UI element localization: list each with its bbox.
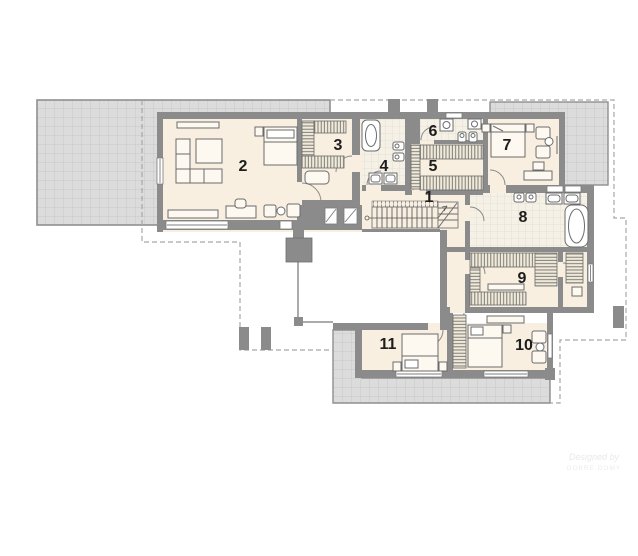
dresser: [524, 171, 552, 180]
room-label-9: 9: [518, 270, 527, 287]
pillar-1: [239, 327, 249, 350]
staircase: [365, 201, 458, 228]
room-label-8: 8: [519, 209, 528, 226]
room-label-1: 1: [425, 189, 434, 206]
dresser: [487, 316, 524, 323]
nightstand: [503, 325, 511, 333]
floor-plan-canvas: 1 2 3 4 5 6 7 8 9 10 11 Designed by DOBR…: [0, 0, 638, 556]
wardrobe: [411, 145, 420, 189]
wardrobe: [302, 156, 344, 168]
bench: [305, 171, 329, 184]
bidet: [526, 193, 536, 202]
side-table: [536, 343, 544, 351]
watermark-line1: Designed by: [552, 452, 636, 463]
room-label-11: 11: [380, 336, 397, 353]
bidet: [393, 153, 404, 161]
room-label-5: 5: [429, 158, 438, 175]
chimney-block: [286, 238, 312, 262]
wardrobe: [314, 121, 346, 133]
washbasin: [564, 193, 580, 204]
nightstand: [393, 362, 401, 371]
chimney-neck: [293, 228, 304, 239]
coffee-table: [196, 139, 222, 163]
void-open-space: [239, 228, 333, 350]
toilet: [458, 132, 466, 142]
chimney-top-2: [427, 99, 438, 112]
wardrobe: [470, 253, 537, 267]
room-label-10: 10: [515, 337, 533, 354]
room-label-4: 4: [380, 158, 389, 175]
designer-watermark: Designed by DOBRE DOMY: [552, 452, 636, 474]
wardrobe: [453, 315, 466, 368]
washbasin: [546, 193, 562, 204]
nightstand: [439, 362, 447, 371]
wardrobe: [420, 176, 483, 190]
sideboard: [177, 122, 219, 128]
chimney-lower-roof: [613, 306, 624, 328]
room-label-6: 6: [429, 123, 438, 140]
wardrobe: [420, 145, 483, 159]
armchair: [532, 331, 546, 343]
armchair: [532, 351, 546, 363]
floor-plan-drawing: 1 2 3 4 5 6 7 8 9 10 11: [0, 0, 638, 556]
toilet: [393, 142, 404, 150]
bathtub: [565, 205, 588, 247]
washbasin: [468, 119, 481, 129]
wardrobe: [566, 253, 583, 283]
washing-machine: [440, 119, 453, 131]
nightstand: [255, 127, 263, 136]
watermark-line2: DOBRE DOMY: [552, 463, 636, 474]
cabinet: [572, 287, 582, 296]
bed-room11: [402, 334, 438, 371]
armchair: [536, 146, 550, 158]
bidet: [469, 132, 477, 142]
low-cabinet: [168, 210, 218, 218]
wardrobe: [535, 253, 557, 286]
room-label-7: 7: [503, 137, 512, 154]
chimney-top-1: [388, 99, 400, 112]
wardrobe: [470, 292, 526, 305]
nightstand: [482, 124, 490, 132]
room-label-2: 2: [239, 158, 248, 175]
pillar-2: [261, 327, 271, 350]
room-label-3: 3: [334, 137, 343, 154]
side-table: [545, 138, 553, 146]
small-table: [533, 162, 544, 170]
toilet: [514, 193, 524, 202]
nightstand: [526, 124, 534, 132]
